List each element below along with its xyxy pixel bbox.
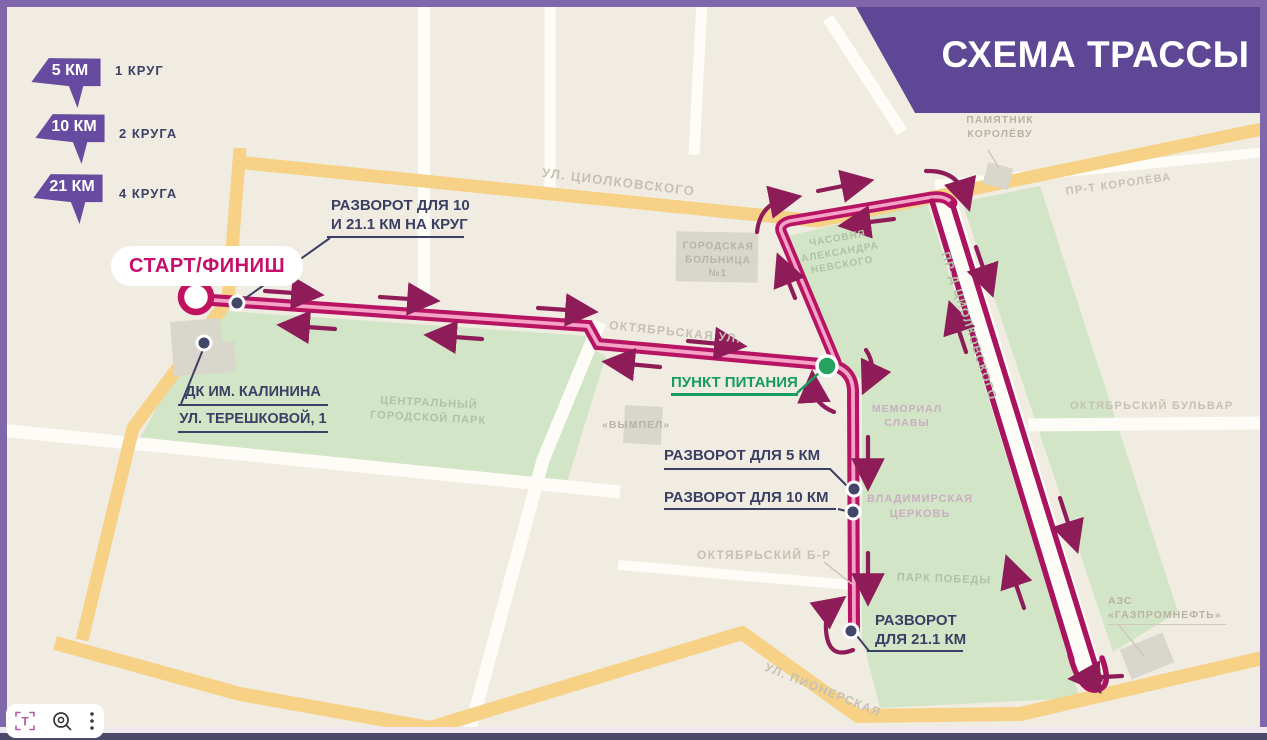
frame-bottom-dark — [0, 733, 1267, 740]
turnaround-21k-label: РАЗВОРОТ ДЛЯ 21.1 КМ — [875, 611, 966, 649]
frame-left — [0, 0, 7, 740]
venue-label-line1: ДК ИМ. КАЛИНИНА — [178, 384, 328, 406]
svg-text:T: T — [21, 715, 29, 729]
start-finish-ring — [181, 282, 211, 312]
legend-laps-21km: 4 КРУГА — [119, 186, 177, 201]
food-callout-line — [797, 373, 819, 393]
turnaround-21k-line1: РАЗВОРОТ — [875, 611, 966, 630]
turnaround-loop-line1: РАЗВОРОТ ДЛЯ 10 — [331, 196, 470, 215]
food-station-underline — [671, 393, 798, 396]
place-memorial-slavy: МЕМОРИАЛ СЛАВЫ — [868, 402, 946, 430]
food-station-label: ПУНКТ ПИТАНИЯ — [671, 374, 798, 391]
frame-right — [1260, 0, 1267, 740]
viewer-toolbar: T — [6, 704, 104, 738]
search-zoom-icon[interactable] — [50, 709, 74, 733]
menu-kebab-icon[interactable] — [87, 709, 97, 733]
page-title: СХЕМА ТРАССЫ — [938, 34, 1253, 76]
course-map-page: 5 КМ 1 КРУГ 10 КМ 2 КРУГА 21 КМ 4 КРУГА … — [0, 0, 1267, 740]
frame-top — [0, 0, 1267, 7]
text-recognition-icon[interactable]: T — [13, 709, 37, 733]
turnaround-5k-label: РАЗВОРОТ ДЛЯ 5 КМ — [664, 447, 820, 464]
legend-distance: 21 КМ — [49, 178, 94, 195]
legend-laps-10km: 2 КРУГА — [119, 126, 177, 141]
place-vympel: «ВЫМПЕЛ» — [602, 418, 670, 432]
place-bolnitsa: ГОРОДСКАЯ БОЛЬНИЦА №1 — [676, 239, 761, 281]
turnaround-21k-line2: ДЛЯ 21.1 КМ — [875, 630, 966, 649]
turnaround-loop-line2: И 21.1 КМ НА КРУГ — [331, 215, 470, 234]
turnaround-loop-label: РАЗВОРОТ ДЛЯ 10 И 21.1 КМ НА КРУГ — [331, 196, 470, 234]
place-vladimirskaya-tserkov: ВЛАДИМИРСКАЯ ЦЕРКОВЬ — [866, 492, 974, 522]
turnaround-loop-underline — [327, 236, 464, 238]
place-pamyatnik-korolevu: ПАМЯТНИК КОРОЛЁВУ — [952, 113, 1048, 141]
legend-distance: 5 КМ — [52, 62, 88, 79]
venue-label-line2: УЛ. ТЕРЕШКОВОЙ, 1 — [178, 411, 328, 433]
title-banner: СХЕМА ТРАССЫ — [852, 0, 1267, 113]
turnaround-21k-underline — [867, 650, 963, 652]
food-station-dot — [817, 356, 837, 376]
street-oktyabrsky-br: ОКТЯБРЬСКИЙ Б-Р — [697, 548, 831, 562]
turnaround-5k-underline — [664, 468, 831, 470]
place-azs: АЗС «ГАЗПРОМНЕФТЬ» — [1108, 594, 1226, 625]
start-finish-label: СТАРТ/ФИНИШ — [111, 246, 303, 286]
turnaround-10k-label: РАЗВОРОТ ДЛЯ 10 КМ — [664, 489, 829, 506]
legend-distance: 10 КМ — [51, 118, 96, 135]
legend-laps-5km: 1 КРУГ — [115, 63, 164, 78]
turnaround-10k-underline — [664, 508, 836, 510]
street-oktyabrsky-bulvar: ОКТЯБРЬСКИЙ БУЛЬВАР — [1070, 400, 1233, 412]
